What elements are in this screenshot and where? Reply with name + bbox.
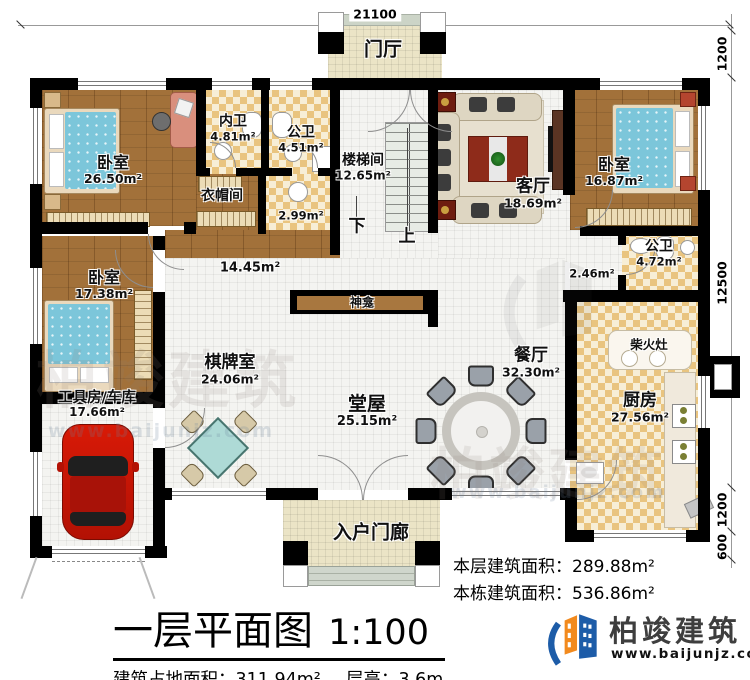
shrine-niche-stub	[428, 290, 438, 327]
decor-shape	[490, 245, 620, 355]
decor-shape: 2.99m²	[278, 209, 323, 223]
brand-name: 柏竣建筑	[609, 608, 741, 650]
decor-shape	[588, 625, 591, 629]
footprint-value: 311.94m²	[236, 670, 321, 680]
decor-shape: 公卫	[287, 125, 315, 141]
chair	[416, 418, 437, 444]
decor-shape: 层高：	[346, 670, 399, 680]
decor-shape	[588, 643, 591, 647]
decor-shape: 餐厅	[514, 345, 548, 365]
decor-shape: 卧室	[97, 153, 129, 172]
cooktop	[672, 404, 696, 428]
dim-right-12500: 12500	[715, 261, 730, 305]
wall-cloak-east	[258, 176, 266, 234]
column-base	[318, 12, 344, 33]
decor-shape	[436, 149, 451, 166]
decor-shape	[568, 633, 571, 638]
room-label-kitchen: 厨房27.56m²	[611, 391, 669, 424]
closet-cloakroom-bottom	[196, 211, 256, 227]
decor-shape	[132, 462, 139, 472]
column	[283, 541, 308, 565]
decor-shape: 18.69m²	[504, 197, 562, 211]
decor-shape	[49, 152, 64, 187]
decor-shape: 衣帽间	[201, 188, 243, 204]
wall-east-column2	[153, 292, 165, 408]
decor-shape	[48, 304, 110, 364]
wall-bath-west	[196, 90, 206, 174]
decor-shape: 本层建筑面积：	[453, 557, 572, 577]
window	[698, 376, 710, 428]
decor-shape: 堂屋	[348, 393, 386, 415]
decor-shape: 24.06m²	[201, 373, 259, 387]
decor-shape: 公卫	[645, 239, 673, 255]
decor-shape: 客厅	[516, 176, 550, 196]
nightstand	[44, 194, 61, 210]
room-label-garage: 工具房/车库17.66m²	[58, 390, 136, 420]
room-label-corridor-area: 14.45m²	[220, 262, 280, 277]
decor-shape	[680, 443, 687, 450]
decor-shape: 2.46m²	[569, 267, 614, 281]
garage-door-dash	[52, 561, 145, 562]
dimension-line-right	[731, 14, 732, 568]
nightstand	[680, 176, 696, 191]
title-block: 一层平面图 1:100 建筑占地面积：311.94m² 层高：3.6m	[113, 598, 445, 680]
door-bedroom1	[148, 234, 184, 270]
decor-shape: 下	[349, 216, 366, 236]
bed-bedroom3	[44, 300, 114, 392]
column-base	[420, 12, 446, 33]
decor-shape: 神龛	[350, 295, 374, 309]
window	[698, 106, 710, 190]
decor-shape: 卧室	[88, 268, 120, 287]
window	[30, 268, 42, 344]
decor-shape	[621, 350, 638, 367]
wall-kitchen-step	[565, 494, 577, 542]
decor-shape	[68, 456, 128, 476]
floor-area-note: 本层建筑面积：289.88m²	[453, 552, 655, 577]
decor-shape: 14.45m²	[220, 261, 280, 276]
dim-top-width: 21100	[349, 7, 401, 22]
wall-bedroom2-south	[580, 226, 710, 236]
dim-right-1200b: 1200	[715, 493, 730, 528]
decor-shape	[80, 367, 109, 383]
window	[172, 488, 266, 500]
decor-shape	[680, 417, 687, 424]
column-base	[283, 565, 308, 587]
desk	[170, 92, 198, 148]
decor-shape	[568, 624, 571, 629]
decor-shape	[49, 114, 64, 149]
decor-shape: 门厅	[364, 38, 402, 60]
decor-shape: 厨房	[623, 390, 657, 410]
decor-shape: 上	[399, 226, 416, 246]
decor-shape	[70, 512, 126, 526]
window	[30, 108, 42, 184]
wall-bath-mid	[261, 90, 269, 174]
decor-shape: 本栋建筑面积：	[453, 584, 572, 604]
decor-shape	[469, 97, 487, 112]
room-label-bedroom3: 卧室17.38m²	[75, 269, 133, 301]
building-area-value: 536.86m²	[572, 584, 655, 604]
desk-chair	[152, 112, 171, 131]
height-value: 3.6m	[398, 670, 443, 680]
decor-shape: 内卫	[219, 114, 247, 130]
room-label-menting: 门厅	[364, 39, 402, 60]
building-area-note: 本栋建筑面积：536.86m²	[453, 579, 655, 604]
wardrobe-bedroom3	[134, 290, 152, 380]
room-label-hall: 堂屋25.15m²	[337, 394, 397, 430]
window	[600, 78, 682, 90]
floor-plan-canvas: 柏竣建筑 www.baijunjz.com 柏竣建筑 www.baijunjz.…	[0, 0, 750, 680]
stair-treads	[385, 122, 432, 232]
room-label-bath-public2: 公卫4.72m²	[636, 240, 681, 269]
chair	[468, 366, 494, 387]
sink	[680, 240, 695, 255]
tv	[548, 126, 553, 172]
decor-shape: 楼梯间	[342, 152, 384, 168]
car	[62, 424, 134, 540]
wall-garage-south	[30, 546, 52, 558]
decor-shape	[70, 476, 126, 512]
wall-bath-south	[196, 168, 210, 176]
decor-shape	[588, 634, 591, 638]
coffee-table	[468, 136, 528, 182]
page-title: 一层平面图	[113, 608, 313, 654]
brand-url: www.baijunjz.com	[611, 646, 750, 662]
window	[212, 78, 252, 90]
dining-table-center	[476, 426, 488, 438]
chimney-flue	[714, 364, 732, 390]
window	[30, 452, 42, 516]
decor-shape	[471, 203, 489, 218]
decor-shape: 卧室	[598, 155, 630, 174]
column	[420, 32, 446, 54]
room-label-bath-inner: 内卫4.81m²	[210, 115, 255, 144]
room-label-entry-porch: 入户门廊	[333, 522, 409, 543]
decor-shape: 入户门廊	[333, 521, 409, 543]
decor-shape: 16.87m²	[585, 174, 643, 188]
room-label-firewood-stove: 柴火灶	[630, 338, 668, 352]
room-label-dining: 餐厅32.30m²	[502, 346, 560, 379]
decor-shape	[583, 624, 586, 628]
decor-shape	[491, 152, 505, 166]
wall-bedroom2-west	[563, 90, 575, 195]
window	[270, 78, 312, 90]
floor-area-value: 289.88m²	[572, 557, 655, 577]
chair	[526, 418, 547, 444]
room-label-bath-public1: 公卫4.51m²	[278, 126, 323, 155]
stair-arrow-line	[407, 128, 408, 226]
wall-east-column3	[153, 448, 165, 558]
decor-shape	[680, 407, 687, 414]
window	[594, 530, 686, 542]
room-label-living: 客厅18.69m²	[504, 177, 562, 210]
column	[318, 32, 344, 54]
garage-door	[52, 546, 145, 558]
decor-shape	[583, 642, 586, 646]
decor-shape	[545, 606, 607, 668]
dim-right-600: 600	[715, 534, 730, 560]
driveway-edge	[21, 557, 38, 599]
decor-shape	[579, 614, 597, 658]
room-label-stairwell: 楼梯间12.65m²	[335, 153, 391, 182]
window	[452, 488, 560, 500]
decor-shape	[565, 615, 577, 654]
room-label-shrine: 神龛	[350, 296, 374, 309]
decor-shape	[680, 453, 687, 460]
decor-shape: 建筑占地面积：	[113, 670, 236, 680]
room-label-chess: 棋牌室24.06m²	[201, 353, 259, 386]
sink	[288, 182, 308, 202]
decor-shape	[649, 350, 666, 367]
stair-direction-line	[356, 196, 357, 218]
decor-shape	[537, 262, 559, 330]
watermark-logo-glyph	[490, 245, 620, 355]
decor-shape	[57, 462, 64, 472]
brand-logo-glyph	[545, 606, 607, 668]
decor-shape: 柴火灶	[630, 337, 668, 352]
sofa-top	[452, 93, 542, 121]
decor-shape	[441, 206, 449, 214]
decor-shape	[675, 111, 690, 147]
dim-right-1200a: 1200	[715, 37, 730, 72]
cooktop	[672, 440, 696, 464]
decor-shape	[49, 367, 78, 383]
decor-shape: 4.72m²	[636, 255, 681, 268]
decor-shape: 12.65m²	[335, 169, 391, 182]
decor-shape: 工具房/车库	[58, 390, 136, 406]
title-underline	[113, 658, 445, 661]
wall-bedroom1-south	[42, 222, 148, 234]
porch-steps	[308, 566, 415, 586]
decor-shape: 27.56m²	[611, 411, 669, 425]
decor-shape	[497, 97, 515, 112]
room-label-bedroom2: 卧室16.87m²	[585, 156, 643, 188]
brand-logo: 柏竣建筑 www.baijunjz.com	[545, 604, 745, 674]
decor-shape	[436, 174, 451, 191]
decor-shape: 4.81m²	[210, 130, 255, 143]
decor-shape: 25.15m²	[337, 415, 397, 430]
nightstand	[680, 92, 696, 107]
decor-shape	[174, 98, 194, 118]
nightstand	[44, 92, 61, 108]
decor-shape	[568, 642, 571, 647]
decor-shape	[509, 278, 522, 348]
stair-label-down: 下	[349, 217, 366, 236]
decor-shape: 17.66m²	[58, 406, 136, 419]
column-base	[415, 565, 440, 587]
driveway-edge	[139, 557, 156, 599]
room-label-cloakroom-area: 2.99m²	[278, 210, 323, 223]
decor-shape: 棋牌室	[204, 352, 255, 372]
decor-shape: 17.38m²	[75, 287, 133, 301]
decor-shape: 4.51m²	[278, 141, 323, 154]
room-label-bedroom1: 卧室26.50m²	[84, 154, 142, 186]
decor-shape: 26.50m²	[84, 172, 142, 186]
wall-bath2-west	[618, 234, 626, 245]
room-label-cloakroom: 衣帽间	[201, 189, 243, 205]
column	[415, 541, 440, 565]
stair-label-up: 上	[399, 227, 416, 246]
decor-shape	[583, 633, 586, 637]
decor-shape	[551, 624, 558, 664]
window	[78, 78, 166, 90]
decor-shape: 32.30m²	[502, 366, 560, 380]
room-label-closet-area: 2.46m²	[569, 268, 614, 281]
title-sub: 建筑占地面积：311.94m² 层高：3.6m	[113, 666, 445, 680]
decor-shape: 一层平面图 1:100	[113, 598, 445, 656]
drawing-scale: 1:100	[328, 613, 429, 653]
wall-bath-south2	[236, 168, 292, 176]
wall-bedroom1-south2	[184, 222, 196, 234]
